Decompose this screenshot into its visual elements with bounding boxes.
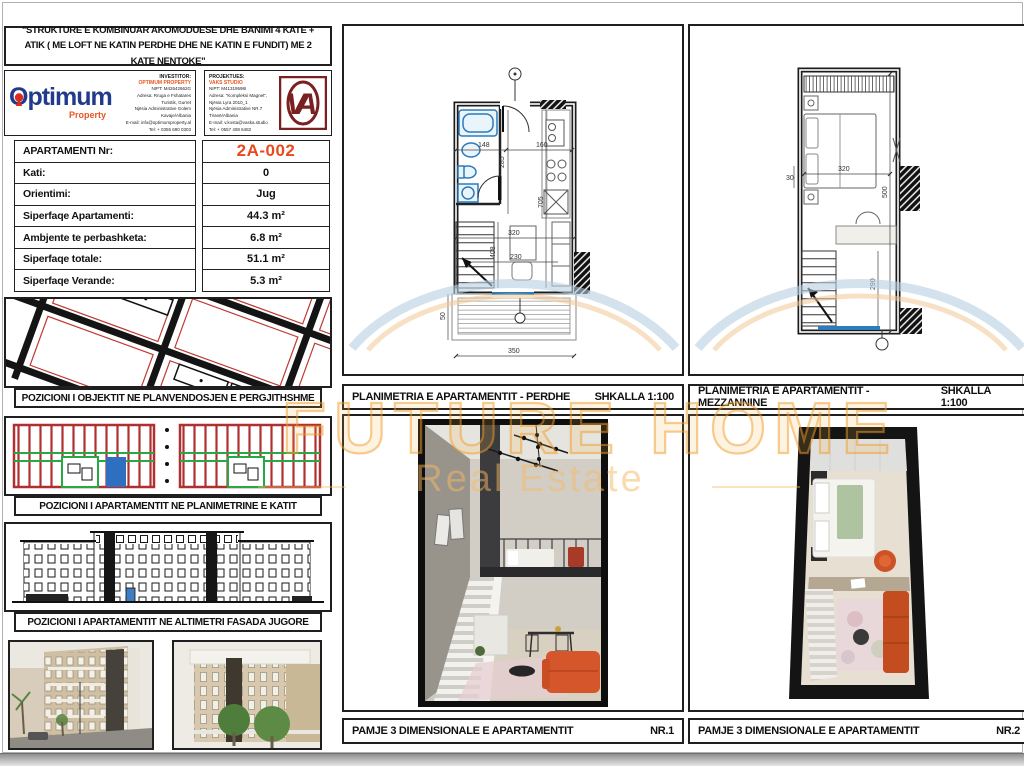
building-photo-corner-image <box>174 642 320 748</box>
key-plan-caption-text: POZICIONI I APARTAMENTIT NE PLANIMETRINE… <box>39 501 296 512</box>
mezzanine-plan-drawing: 320 500 290 30 <box>690 26 1024 374</box>
render3d-topdown-image <box>785 419 933 707</box>
dim-label: 148 <box>478 142 490 149</box>
render3d-topdown-title: PAMJE 3 DIMENSIONALE E APARTAMENTIT <box>698 725 919 737</box>
dim-label: 50 <box>440 312 447 320</box>
ground-plan-title: PLANIMETRIA E APARTAMENTIT - PERDHE <box>352 391 570 403</box>
info-value: 5.3 m² <box>203 270 329 291</box>
dim-label: 320 <box>508 230 520 237</box>
sheet-title: "STRUKTURE E KOMBINUAR AKOMODUESE DHE BA… <box>4 26 332 66</box>
info-label: Ambjente te perbashketa: <box>15 227 195 249</box>
optimum-logo: Optimum Property <box>9 85 113 125</box>
ground-plan-box: 148 160 285 705 320 230 408 350 50 <box>342 24 684 376</box>
ground-plan-scale: SHKALLA 1:100 <box>595 391 674 403</box>
dim-label: 350 <box>508 348 520 355</box>
investor-box: Optimum Property INVESTITOR: OPTIMUM PRO… <box>4 70 196 136</box>
apartment-info-values: 2A-002 0 Jug 44.3 m² 6.8 m² 51.1 m² 5.3 … <box>202 140 330 292</box>
optimum-logo-tagline: Property <box>69 110 106 120</box>
info-label: Siperfaqe Apartamenti: <box>15 206 195 228</box>
elevation-drawing <box>6 524 330 610</box>
mezzanine-plan-scale: SHKALLA 1:100 <box>941 385 1020 409</box>
designer-box: PROJEKTUES: VAKS STUDIO NIPT: M41319598I… <box>204 70 332 136</box>
dim-label: 285 <box>499 156 506 168</box>
mezzanine-plan-box: 320 500 290 30 <box>688 24 1024 376</box>
info-value: Jug <box>203 184 329 206</box>
site-plan-caption: POZICIONI I OBJEKTIT NE PLANVENDOSJEN E … <box>14 388 322 408</box>
info-value: 51.1 m² <box>203 249 329 271</box>
info-value: 0 <box>203 163 329 185</box>
render3d-topdown-box <box>688 414 1024 712</box>
render3d-topdown-number: NR.2 <box>996 725 1020 737</box>
info-label: Kati: <box>15 163 195 185</box>
elevation-caption: POZICIONI I APARTAMENTIT NE ALTIMETRI FA… <box>14 612 322 632</box>
dim-label: 320 <box>838 166 850 173</box>
building-photo-street-image <box>10 642 152 748</box>
investor-details: NIPT: M42642662G Adresa: Rruga e Fshatar… <box>111 86 191 133</box>
designer-info: PROJEKTUES: VAKS STUDIO NIPT: M41319598I… <box>209 74 275 133</box>
designer-details: NIPT: M41319598I Adresa: "Kompleksi Magn… <box>209 86 275 133</box>
info-value: 6.8 m² <box>203 227 329 249</box>
render3d-interior-image <box>418 419 608 707</box>
dim-label: 160 <box>536 142 548 149</box>
render3d-interior-box <box>342 414 684 712</box>
keyhole-icon <box>12 92 26 107</box>
va-monogram-logo: VA <box>279 76 327 130</box>
render3d-interior-number: NR.1 <box>650 725 674 737</box>
mezzanine-plan-title: PLANIMETRIA E APARTAMENTIT - MEZZANNINE <box>698 385 941 409</box>
ground-plan-caption: PLANIMETRIA E APARTAMENTIT - PERDHE SHKA… <box>342 384 684 410</box>
apartment-number: 2A-002 <box>203 141 329 163</box>
sheet-bottom-edge <box>0 753 1024 766</box>
apartment-info-labels: APARTAMENTI Nr: Kati: Orientimi: Siperfa… <box>14 140 196 292</box>
render3d-interior-caption: PAMJE 3 DIMENSIONALE E APARTAMENTIT NR.1 <box>342 718 684 744</box>
key-plan-box <box>4 416 332 496</box>
key-plan-caption: POZICIONI I APARTAMENTIT NE PLANIMETRINE… <box>14 496 322 516</box>
elevation-caption-text: POZICIONI I APARTAMENTIT NE ALTIMETRI FA… <box>27 617 308 628</box>
info-label: Siperfaqe Verande: <box>15 270 195 291</box>
info-label: APARTAMENTI Nr: <box>15 141 195 163</box>
key-plan-drawing <box>6 418 330 494</box>
dim-label: 230 <box>510 254 522 261</box>
plan-sheet: "STRUKTURE E KOMBINUAR AKOMODUESE DHE BA… <box>0 0 1024 768</box>
site-plan-caption-text: POZICIONI I OBJEKTIT NE PLANVENDOSJEN E … <box>22 393 315 404</box>
mezzanine-plan-caption: PLANIMETRIA E APARTAMENTIT - MEZZANNINE … <box>688 384 1024 410</box>
site-plan-drawing <box>6 299 330 386</box>
info-label: Orientimi: <box>15 184 195 206</box>
dim-label: 290 <box>870 278 877 290</box>
info-label: Siperfaqe totale: <box>15 249 195 271</box>
site-plan-box <box>4 297 332 388</box>
dim-label: 500 <box>882 186 889 198</box>
elevation-box <box>4 522 332 612</box>
sheet-title-text: "STRUKTURE E KOMBINUAR AKOMODUESE DHE BA… <box>12 23 324 70</box>
info-value: 44.3 m² <box>203 206 329 228</box>
ground-floor-plan-drawing: 148 160 285 705 320 230 408 350 50 <box>344 26 682 374</box>
building-photo-street <box>8 640 154 750</box>
dim-label: 30 <box>786 175 794 182</box>
dim-label: 705 <box>538 196 545 208</box>
investor-info: INVESTITOR: OPTIMUM PROPERTY NIPT: M4264… <box>111 74 191 133</box>
building-photo-corner <box>172 640 322 750</box>
dim-label: 408 <box>490 246 497 258</box>
render3d-topdown-caption: PAMJE 3 DIMENSIONALE E APARTAMENTIT NR.2 <box>688 718 1024 744</box>
render3d-interior-title: PAMJE 3 DIMENSIONALE E APARTAMENTIT <box>352 725 573 737</box>
